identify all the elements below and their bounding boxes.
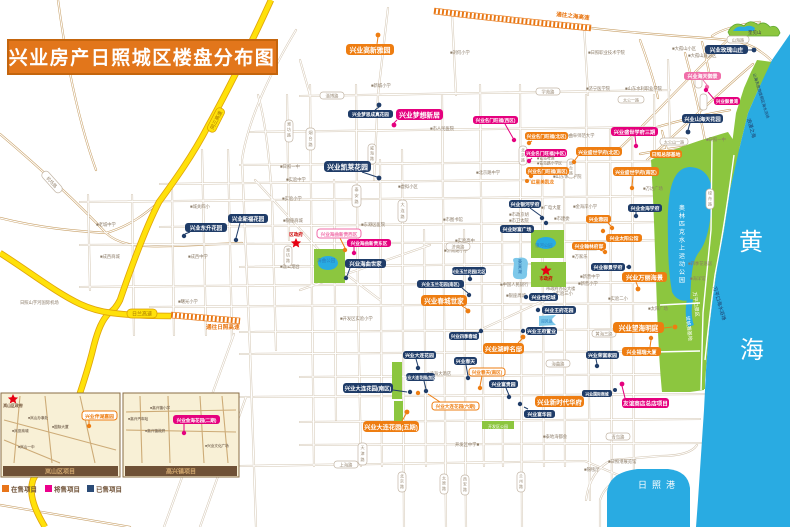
svg-text:兴业名门旺福(南区): 兴业名门旺福(南区)	[528, 168, 568, 175]
svg-text:山海路: 山海路	[732, 36, 744, 42]
svg-text:日照山字河国际机场: 日照山字河国际机场	[20, 299, 59, 306]
svg-text:兴业伴湖嘉园: 兴业伴湖嘉园	[85, 413, 114, 420]
svg-text:■新营小学: ■新营小学	[578, 280, 598, 287]
svg-text:■市政京胡: ■市政京胡	[509, 211, 529, 218]
svg-text:兴业大连花园(六期): 兴业大连花园(六期)	[436, 403, 476, 410]
svg-text:兴业财富广场: 兴业财富广场	[503, 226, 532, 233]
svg-text:■青岛啤酒: ■青岛啤酒	[537, 156, 555, 161]
svg-text:日兰高速: 日兰高速	[132, 311, 152, 318]
svg-text:兴业高新雅园: 兴业高新雅园	[350, 46, 391, 55]
svg-text:■市建委: ■市建委	[554, 215, 570, 222]
svg-text:北京路: 北京路	[521, 148, 525, 163]
svg-text:■岚山办事处: ■岚山办事处	[28, 415, 49, 420]
svg-text:兴业世纪城: 兴业世纪城	[532, 294, 556, 301]
svg-text:兴业春天: 兴业春天	[456, 358, 475, 365]
svg-text:兴业海曲新贵东区: 兴业海曲新贵东区	[351, 240, 388, 247]
svg-text:兴业银河学府: 兴业银河学府	[511, 201, 540, 208]
svg-text:潍坊路: 潍坊路	[286, 248, 290, 263]
svg-text:已售项目: 已售项目	[96, 485, 122, 494]
svg-text:■老城中学: ■老城中学	[96, 221, 116, 228]
svg-text:■高兴镇政府: ■高兴镇政府	[145, 428, 166, 433]
svg-text:■刘何小学: ■刘何小学	[450, 49, 470, 56]
svg-text:■市卫太院: ■市卫太院	[509, 217, 529, 224]
svg-text:■银座商城: ■银座商城	[283, 217, 303, 224]
svg-text:奎见山: 奎见山	[748, 29, 762, 36]
svg-text:太公一路: 太公一路	[623, 96, 639, 102]
svg-text:兰州路: 兰州路	[519, 474, 523, 489]
svg-text:兴业王府花园: 兴业王府花园	[545, 307, 574, 314]
svg-text:银河公园: 银河公园	[535, 242, 553, 249]
svg-text:黄: 黄	[739, 229, 763, 256]
svg-text:高兴镇项目: 高兴镇项目	[166, 468, 196, 476]
svg-text:兴业太阳公馆: 兴业太阳公馆	[610, 235, 639, 242]
svg-text:威海路: 威海路	[370, 146, 374, 161]
svg-text:■实验中学: ■实验中学	[286, 176, 306, 183]
svg-text:兴业玫瑰山庄: 兴业玫瑰山庄	[710, 46, 744, 54]
svg-text:■成西商城: ■成西商城	[100, 253, 120, 260]
svg-text:■山东水利职业学院: ■山东水利职业学院	[625, 85, 663, 92]
svg-text:兴业国际商城: 兴业国际商城	[585, 391, 608, 396]
svg-text:兴业春城世家: 兴业春城世家	[424, 297, 464, 306]
svg-text:兴业大连花园(五期): 兴业大连花园(五期)	[364, 424, 418, 432]
svg-text:兴业蓉园: 兴业蓉园	[589, 216, 608, 223]
svg-text:兴业福瑞大厦: 兴业福瑞大厦	[626, 349, 657, 356]
svg-text:海: 海	[740, 337, 764, 364]
svg-text:■大孤山小区: ■大孤山小区	[672, 45, 697, 52]
svg-text:市政府: 市政府	[539, 275, 553, 282]
svg-text:兴业望海明庭: 兴业望海明庭	[619, 324, 659, 333]
svg-text:兴业盛世学府(南区): 兴业盛世学府(南区)	[615, 169, 657, 176]
svg-text:■泰地海都会: ■泰地海都会	[543, 433, 568, 440]
svg-text:兴业梦想新居: 兴业梦想新居	[399, 111, 440, 120]
svg-text:兴业翰林府邸: 兴业翰林府邸	[575, 243, 604, 250]
svg-text:兴业山海天花园: 兴业山海天花园	[684, 115, 720, 123]
svg-text:北京路: 北京路	[400, 474, 404, 489]
svg-text:迎风湖: 迎风湖	[541, 319, 553, 324]
svg-text:开发区中学■: 开发区中学■	[455, 441, 479, 448]
svg-text:兴业春天(南区): 兴业春天(南区)	[472, 369, 503, 376]
svg-text:兴业金海学府: 兴业金海学府	[631, 205, 660, 212]
svg-text:兴业大连花园(加区): 兴业大连花园(加区)	[404, 375, 438, 380]
svg-text:兴业海曲新贵西区: 兴业海曲新贵西区	[321, 231, 358, 238]
svg-text:■开发区实验小学: ■开发区实验小学	[340, 315, 373, 322]
svg-text:在售项目: 在售项目	[11, 485, 37, 494]
svg-text:西安路: 西安路	[463, 477, 467, 492]
svg-text:日照总部基地: 日照总部基地	[652, 151, 681, 158]
svg-text:学苑路: 学苑路	[542, 88, 556, 95]
svg-text:■中国人民银行: ■中国人民银行	[500, 281, 529, 288]
svg-text:兴业盛世学府(北区): 兴业盛世学府(北区)	[578, 149, 620, 156]
svg-text:■实验二小: ■实验二小	[608, 295, 628, 302]
svg-text:潍坊路: 潍坊路	[287, 122, 291, 138]
svg-text:兴业湖畔名邸: 兴业湖畔名邸	[485, 346, 523, 354]
svg-text:大连路: 大连路	[400, 201, 404, 219]
svg-text:■日照港展览馆: ■日照港展览馆	[608, 458, 637, 465]
svg-text:兴业富华园: 兴业富华园	[528, 411, 552, 418]
svg-text:兴业玉兰花园(南区): 兴业玉兰花园(南区)	[421, 281, 460, 288]
svg-text:■海洋馆: ■海洋馆	[690, 275, 706, 282]
svg-text:岚山区项目: 岚山区项目	[45, 468, 75, 476]
svg-text:兴业名门旺福(西区): 兴业名门旺福(西区)	[476, 117, 516, 124]
svg-text:青岛路: 青岛路	[612, 433, 626, 440]
svg-text:开发区公园: 开发区公园	[488, 423, 508, 429]
svg-text:兴业玉兰花园(北区): 兴业玉兰花园(北区)	[451, 268, 488, 275]
svg-text:■虚拟小区: ■虚拟小区	[398, 183, 418, 190]
svg-text:兴业大连花园(南区): 兴业大连花园(南区)	[345, 385, 392, 393]
svg-text:兴业万丽海景: 兴业万丽海景	[626, 274, 664, 282]
svg-text:天津路: 天津路	[360, 445, 364, 462]
svg-text:■新城小学: ■新城小学	[371, 82, 391, 89]
svg-text:兴业新时代华府: 兴业新时代华府	[537, 398, 582, 407]
svg-text:■兴业文化广场: ■兴业文化广场	[205, 443, 229, 448]
svg-text:兴业梦思成真花园: 兴业梦思成真花园	[352, 111, 389, 118]
svg-text:■城关四小: ■城关四小	[190, 203, 210, 210]
svg-text:■高兴镇小学: ■高兴镇小学	[150, 405, 171, 410]
svg-text:■广电大厦: ■广电大厦	[541, 204, 561, 211]
svg-text:■市人民医院: ■市人民医院	[430, 125, 455, 132]
svg-text:兴业海曲世家: 兴业海曲世家	[349, 260, 382, 268]
svg-text:兴业四季春城: 兴业四季春城	[451, 333, 478, 340]
svg-text:■锦毯厅: ■锦毯厅	[584, 466, 600, 473]
svg-text:友谊商店总店项目: 友谊商店总店项目	[623, 400, 668, 408]
svg-text:兴业凯莱花园: 兴业凯莱花园	[327, 163, 368, 172]
svg-text:海曲路: 海曲路	[552, 360, 566, 367]
svg-text:将售项目: 将售项目	[54, 485, 80, 494]
svg-text:兴业房产日照城区楼盘分布图: 兴业房产日照城区楼盘分布图	[9, 46, 276, 69]
svg-text:■金海岸小学: ■金海岸小学	[573, 203, 598, 210]
svg-text:淄博路: 淄博路	[326, 92, 340, 99]
svg-text:■东港区医院: ■东港区医院	[361, 221, 386, 228]
svg-text:通往日照高速: 通往日照高速	[206, 323, 240, 331]
svg-text:■北京路中学: ■北京路中学	[476, 169, 501, 176]
svg-text:济南路: 济南路	[452, 243, 466, 250]
svg-text:■太阳广场: ■太阳广场	[648, 305, 668, 312]
svg-text:泰安路: 泰安路	[354, 186, 358, 204]
svg-text:岚山区政府: 岚山区政府	[2, 403, 23, 408]
svg-text:■岚亚商城: ■岚亚商城	[12, 428, 29, 433]
svg-text:烟台路: 烟台路	[308, 129, 312, 147]
svg-text:■日照职业技术学院: ■日照职业技术学院	[588, 49, 626, 56]
svg-text:■成西中学: ■成西中学	[188, 253, 208, 260]
svg-text:兴业东升花园: 兴业东升花园	[190, 224, 223, 232]
svg-text:兴业新福花园: 兴业新福花园	[232, 215, 265, 223]
svg-text:葵莫湖: 葵莫湖	[518, 258, 522, 274]
svg-text:黄海三路: 黄海三路	[595, 330, 613, 337]
svg-text:日照港: 日照港	[638, 479, 680, 490]
svg-text:兴业王府置业: 兴业王府置业	[527, 328, 556, 335]
svg-text:区政府: 区政府	[289, 231, 303, 238]
svg-text:兴业海天御景: 兴业海天御景	[687, 73, 717, 80]
svg-text:海曲公园: 海曲公园	[317, 257, 336, 264]
svg-text:兴业盛世学府三期: 兴业盛世学府三期	[614, 128, 656, 136]
svg-text:■四季花语居: ■四季花语居	[688, 260, 713, 267]
svg-text:兴业名门旺福(北区): 兴业名门旺福(北区)	[527, 133, 567, 140]
svg-text:■高兴汽车站: ■高兴汽车站	[128, 416, 149, 421]
svg-text:太原路: 太原路	[442, 476, 446, 491]
svg-text:■国际大厦: ■国际大厦	[52, 424, 69, 429]
svg-text:兴业御景湾: 兴业御景湾	[716, 98, 739, 105]
svg-text:■日照一中: ■日照一中	[706, 136, 726, 143]
svg-text:上海路: 上海路	[340, 461, 354, 468]
svg-text:■济宁医学院: ■济宁医学院	[586, 85, 611, 92]
svg-text:■万达广场: ■万达广场	[643, 185, 663, 192]
svg-text:■银座周城: ■银座周城	[506, 292, 526, 299]
svg-text:■曲阜师范大学: ■曲阜师范大学	[566, 132, 595, 139]
svg-text:■市图书馆: ■市图书馆	[443, 216, 463, 223]
svg-text:兴业大连花园: 兴业大连花园	[405, 352, 434, 359]
svg-text:兴业御景学府: 兴业御景学府	[594, 264, 623, 271]
svg-text:太公山一路: 太公山一路	[664, 138, 684, 144]
svg-text:兴业荣富家园: 兴业荣富家园	[588, 352, 617, 359]
svg-text:■实验小学: ■实验小学	[282, 195, 302, 202]
svg-text:■新营中学: ■新营中学	[580, 273, 600, 280]
svg-text:■曙光小学: ■曙光小学	[178, 298, 198, 305]
svg-text:兴业富贵园: 兴业富贵园	[492, 381, 516, 388]
svg-text:绿舟路: 绿舟路	[708, 190, 712, 207]
svg-text:■岚山一中: ■岚山一中	[18, 444, 35, 449]
svg-text:■青岛路小学区: ■青岛路小学区	[537, 161, 562, 166]
svg-text:■日照一中: ■日照一中	[280, 163, 300, 170]
svg-text:■万家乐: ■万家乐	[572, 253, 588, 260]
svg-text:市政府办公大楼: 市政府办公大楼	[546, 285, 575, 292]
svg-text:红星美凯龙: 红星美凯龙	[531, 179, 554, 186]
svg-text:兴业金海花园(二期): 兴业金海花园(二期)	[177, 417, 217, 424]
